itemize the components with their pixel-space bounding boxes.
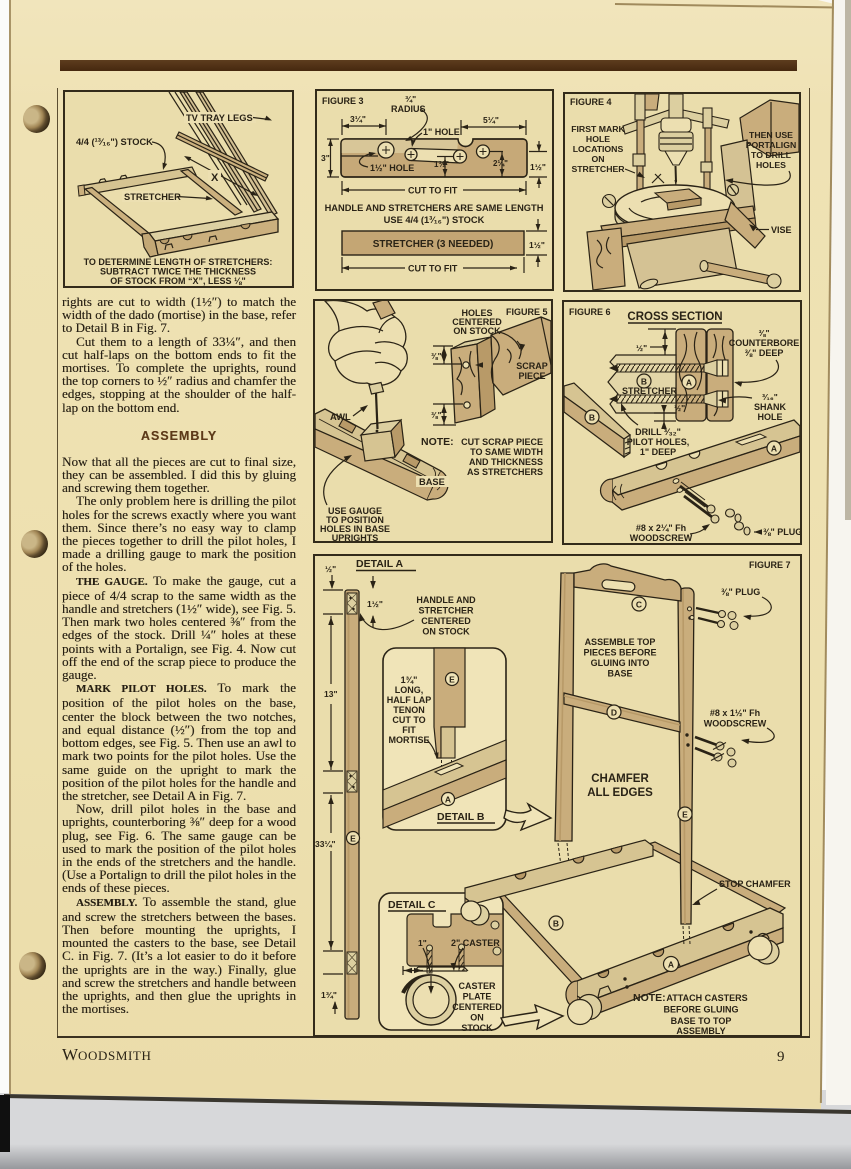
svg-text:STRETCHER (3 NEEDED): STRETCHER (3 NEEDED) bbox=[373, 239, 494, 250]
svg-text:PLATE: PLATE bbox=[463, 992, 492, 1002]
svg-text:STOP CHAMFER: STOP CHAMFER bbox=[719, 879, 791, 889]
svg-text:CENTERED: CENTERED bbox=[421, 616, 471, 626]
svg-text:HOLE: HOLE bbox=[757, 412, 782, 422]
svg-text:NOTE:: NOTE: bbox=[421, 436, 454, 448]
svg-text:3": 3" bbox=[321, 153, 330, 163]
svg-text:TO DETERMINE LENGTH OF STRETCH: TO DETERMINE LENGTH OF STRETCHERS: bbox=[84, 257, 273, 267]
svg-text:B: B bbox=[553, 919, 559, 929]
svg-text:A: A bbox=[445, 795, 451, 805]
svg-text:GLUING INTO: GLUING INTO bbox=[591, 658, 650, 668]
svg-text:PIECE: PIECE bbox=[518, 371, 545, 381]
svg-text:½": ½" bbox=[325, 564, 336, 574]
svg-text:AND THICKNESS: AND THICKNESS bbox=[469, 457, 543, 467]
svg-text:STRETCHER: STRETCHER bbox=[622, 386, 678, 396]
svg-text:1½": 1½" bbox=[529, 240, 545, 250]
svg-text:STRETCHER: STRETCHER bbox=[124, 192, 181, 202]
svg-text:DETAIL A: DETAIL A bbox=[356, 558, 403, 570]
svg-text:½": ½" bbox=[674, 403, 685, 413]
svg-text:USE 4/4 (1³⁄₁₆") STOCK: USE 4/4 (1³⁄₁₆") STOCK bbox=[384, 215, 485, 225]
svg-text:E: E bbox=[350, 834, 356, 844]
svg-text:A: A bbox=[771, 444, 777, 454]
svg-text:DRILL ³⁄₃₂": DRILL ³⁄₃₂" bbox=[635, 427, 681, 437]
svg-text:1¾": 1¾" bbox=[321, 990, 337, 1000]
svg-text:STOCK: STOCK bbox=[461, 1023, 493, 1033]
svg-text:3¼": 3¼" bbox=[350, 114, 366, 124]
svg-text:SHANK: SHANK bbox=[754, 402, 787, 412]
svg-text:WOODSCREW: WOODSCREW bbox=[630, 533, 693, 543]
svg-text:FIGURE 4: FIGURE 4 bbox=[570, 97, 612, 107]
svg-text:CHAMFER: CHAMFER bbox=[591, 773, 649, 785]
svg-text:1½": 1½" bbox=[367, 599, 383, 609]
svg-text:E: E bbox=[449, 675, 455, 685]
svg-text:HANDLE AND: HANDLE AND bbox=[416, 595, 476, 605]
svg-text:CENTERED: CENTERED bbox=[452, 1002, 502, 1012]
svg-text:THEN USE: THEN USE bbox=[749, 130, 793, 140]
svg-text:BASE: BASE bbox=[419, 477, 445, 487]
svg-text:¾": ¾" bbox=[405, 94, 416, 104]
svg-text:1" DEEP: 1" DEEP bbox=[640, 447, 676, 457]
svg-text:TV TRAY LEGS: TV TRAY LEGS bbox=[186, 113, 253, 123]
svg-text:DETAIL B: DETAIL B bbox=[437, 811, 485, 823]
svg-text:TO DRILL: TO DRILL bbox=[751, 150, 792, 160]
svg-text:STRETCHER: STRETCHER bbox=[418, 606, 474, 616]
svg-text:HOLES: HOLES bbox=[756, 160, 786, 170]
svg-text:WOODSCREW: WOODSCREW bbox=[704, 719, 767, 729]
svg-text:³⁄₁₆": ³⁄₁₆" bbox=[762, 392, 778, 402]
svg-text:1¾": 1¾" bbox=[434, 160, 449, 169]
svg-text:SCRAP: SCRAP bbox=[516, 361, 548, 371]
svg-text:PIECES BEFORE: PIECES BEFORE bbox=[583, 648, 656, 658]
svg-text:13": 13" bbox=[324, 689, 338, 699]
svg-text:CUT TO FIT: CUT TO FIT bbox=[408, 186, 458, 196]
svg-text:PORTALIGN: PORTALIGN bbox=[746, 140, 797, 150]
svg-text:1" HOLE: 1" HOLE bbox=[423, 127, 460, 137]
svg-text:MORTISE: MORTISE bbox=[388, 735, 429, 745]
svg-text:VISE: VISE bbox=[771, 225, 792, 235]
svg-text:FIRST MARK: FIRST MARK bbox=[571, 124, 625, 134]
svg-text:⅜": ⅜" bbox=[431, 352, 442, 361]
svg-text:AS STRETCHERS: AS STRETCHERS bbox=[467, 467, 543, 477]
svg-text:B: B bbox=[589, 413, 595, 423]
svg-text:ASSEMBLY: ASSEMBLY bbox=[676, 1026, 725, 1035]
svg-text:LOCATIONS: LOCATIONS bbox=[573, 144, 624, 154]
svg-text:⅜": ⅜" bbox=[431, 411, 442, 420]
svg-text:E: E bbox=[682, 810, 688, 820]
svg-text:ASSEMBLE TOP: ASSEMBLE TOP bbox=[585, 637, 656, 647]
svg-text:LONG,: LONG, bbox=[395, 685, 424, 695]
svg-text:4/4 (¹³⁄₁₆") STOCK: 4/4 (¹³⁄₁₆") STOCK bbox=[76, 137, 153, 147]
svg-text:FIGURE 7: FIGURE 7 bbox=[749, 560, 791, 570]
svg-text:⅜" PLUGS: ⅜" PLUGS bbox=[763, 527, 800, 537]
svg-text:C: C bbox=[636, 600, 642, 610]
svg-text:ON: ON bbox=[591, 154, 604, 164]
svg-text:HOLE: HOLE bbox=[586, 134, 610, 144]
svg-text:D: D bbox=[611, 708, 617, 718]
svg-text:FIGURE 6: FIGURE 6 bbox=[569, 307, 611, 317]
svg-text:ON STOCK: ON STOCK bbox=[453, 326, 501, 336]
svg-text:COUNTERBORE: COUNTERBORE bbox=[729, 338, 800, 348]
svg-text:X: X bbox=[211, 172, 219, 184]
svg-text:⅜" DEEP: ⅜" DEEP bbox=[745, 348, 784, 358]
svg-text:1": 1" bbox=[418, 938, 427, 948]
svg-text:1¾": 1¾" bbox=[401, 675, 418, 685]
svg-text:UPRIGHTS: UPRIGHTS bbox=[332, 533, 379, 541]
svg-text:BEFORE GLUING: BEFORE GLUING bbox=[663, 1005, 738, 1015]
svg-text:DETAIL C: DETAIL C bbox=[388, 899, 436, 911]
svg-text:A: A bbox=[668, 960, 674, 970]
svg-text:#8 x 1½" Fh: #8 x 1½" Fh bbox=[710, 708, 760, 718]
svg-text:33¼": 33¼" bbox=[315, 839, 336, 849]
svg-text:FIT: FIT bbox=[402, 725, 416, 735]
svg-text:1½" HOLE: 1½" HOLE bbox=[370, 163, 414, 173]
svg-text:BASE TO TOP: BASE TO TOP bbox=[671, 1016, 732, 1026]
svg-text:TENON: TENON bbox=[393, 705, 425, 715]
svg-text:ALL EDGES: ALL EDGES bbox=[587, 787, 653, 799]
svg-text:HALF LAP: HALF LAP bbox=[387, 695, 432, 705]
svg-text:CUT TO: CUT TO bbox=[392, 715, 425, 725]
svg-text:SUBTRACT TWICE THE THICKNESS: SUBTRACT TWICE THE THICKNESS bbox=[100, 267, 256, 277]
svg-text:A: A bbox=[686, 378, 692, 388]
svg-text:½": ½" bbox=[636, 343, 647, 353]
svg-text:CROSS SECTION: CROSS SECTION bbox=[627, 311, 722, 323]
svg-text:BASE: BASE bbox=[607, 669, 632, 679]
svg-text:B: B bbox=[641, 377, 647, 387]
svg-text:ON: ON bbox=[470, 1013, 484, 1023]
svg-text:CUT SCRAP PIECE: CUT SCRAP PIECE bbox=[461, 437, 543, 447]
svg-text:FIGURE 5: FIGURE 5 bbox=[506, 307, 548, 317]
svg-text:#8 x 2¼" Fh: #8 x 2¼" Fh bbox=[636, 523, 686, 533]
svg-text:HANDLE AND STRETCHERS ARE SAME: HANDLE AND STRETCHERS ARE SAME LENGTH bbox=[325, 203, 544, 213]
svg-text:AWL: AWL bbox=[330, 412, 351, 422]
svg-text:2¼": 2¼" bbox=[493, 159, 508, 168]
svg-text:OF STOCK FROM “X”, LESS ⅛": OF STOCK FROM “X”, LESS ⅛" bbox=[110, 276, 246, 286]
svg-text:ATTACH CASTERS: ATTACH CASTERS bbox=[666, 993, 747, 1003]
svg-text:PILOT HOLES,: PILOT HOLES, bbox=[627, 437, 690, 447]
svg-text:FIGURE 3: FIGURE 3 bbox=[322, 96, 364, 106]
svg-text:NOTE:: NOTE: bbox=[633, 992, 666, 1004]
svg-text:2" CASTER: 2" CASTER bbox=[451, 938, 500, 948]
svg-text:⅜" PLUG: ⅜" PLUG bbox=[721, 587, 760, 597]
svg-text:CASTER: CASTER bbox=[458, 981, 496, 991]
svg-text:CUT TO FIT: CUT TO FIT bbox=[408, 264, 458, 274]
svg-text:1½": 1½" bbox=[530, 162, 546, 172]
svg-text:5¼": 5¼" bbox=[483, 115, 499, 125]
svg-text:ON STOCK: ON STOCK bbox=[422, 627, 470, 637]
svg-text:⅜": ⅜" bbox=[758, 328, 769, 338]
svg-text:STRETCHER: STRETCHER bbox=[571, 164, 625, 174]
svg-text:TO SAME WIDTH: TO SAME WIDTH bbox=[470, 447, 543, 457]
